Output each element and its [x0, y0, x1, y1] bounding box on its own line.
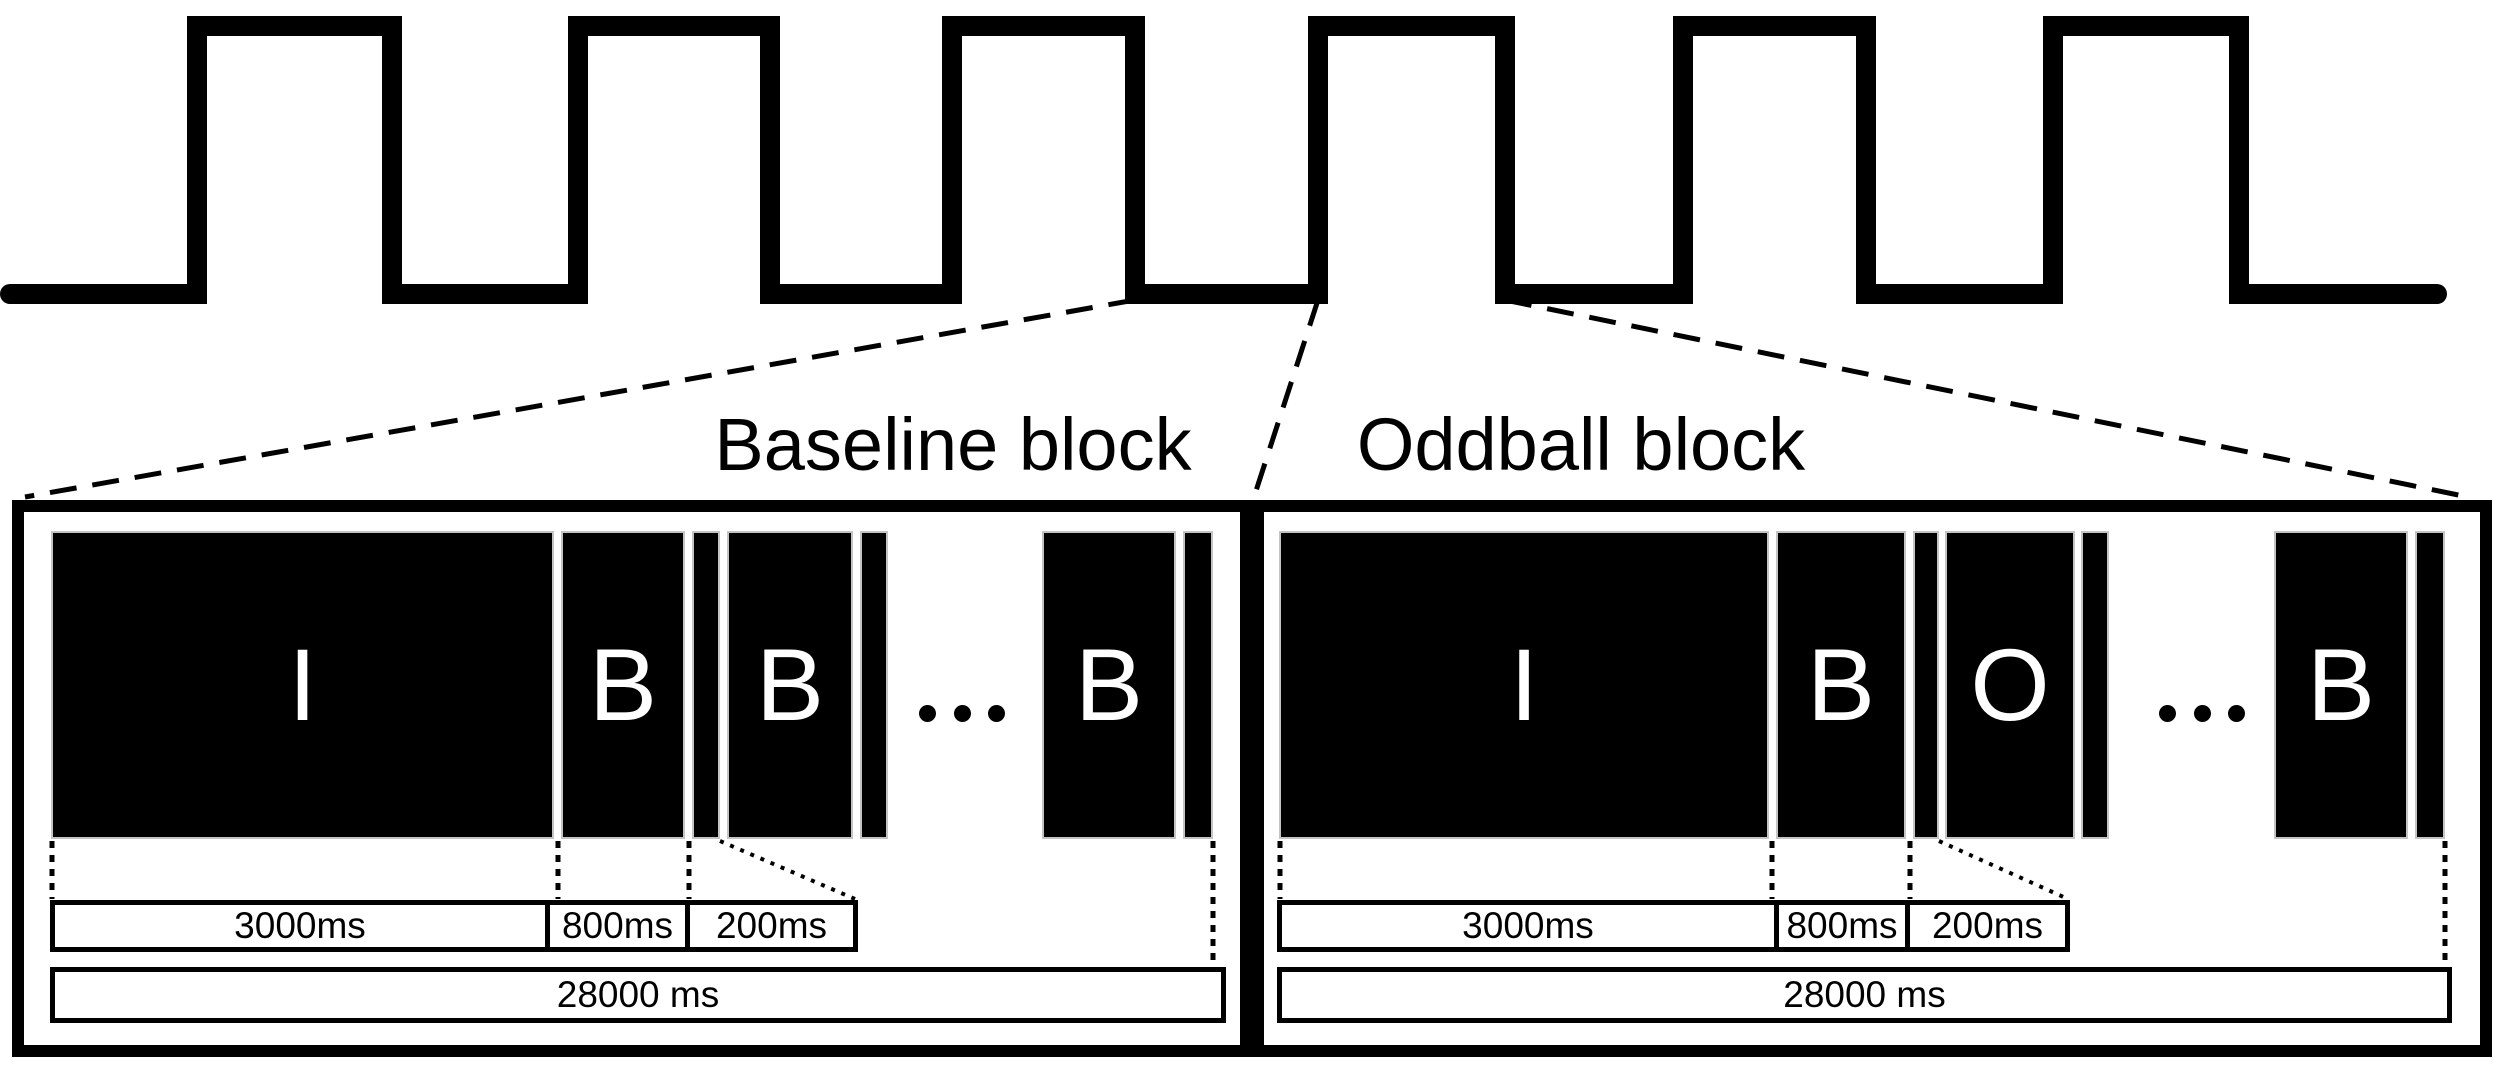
baseline-isi-last — [1183, 531, 1213, 839]
baseline-stimulus-2-letter: B — [756, 634, 824, 736]
baseline-stimulus-last: B — [1042, 531, 1176, 839]
ellipsis-dot — [2228, 705, 2245, 722]
duration-label: 200ms — [1932, 905, 2043, 947]
ellipsis-dot — [2159, 705, 2176, 722]
baseline-stimulus-2: B — [727, 531, 853, 839]
baseline-block-title: Baseline block — [700, 406, 1206, 484]
baseline-stimulus-1-letter: B — [589, 634, 657, 736]
duration-label: 800ms — [1786, 905, 1897, 947]
baseline-total-duration-bar: 28000 ms — [50, 967, 1226, 1023]
oddball-stimulus-1-letter: B — [1807, 634, 1875, 736]
oddball-stimulus-initial: I — [1279, 531, 1769, 839]
duration-label: 800ms — [562, 905, 673, 947]
baseline-duration-cell-3000ms: 3000ms — [50, 900, 550, 952]
oddball-initial-letter: I — [1510, 634, 1538, 736]
oddball-stimulus-1: B — [1776, 531, 1906, 839]
oddball-isi-2 — [2081, 531, 2109, 839]
oddball-duration-cell-200ms: 200ms — [1905, 900, 2070, 952]
oddball-duration-cell-800ms: 800ms — [1774, 900, 1910, 952]
total-duration-label: 28000 ms — [1783, 974, 1946, 1016]
ellipsis-dot — [988, 705, 1005, 722]
ellipsis-dot — [954, 705, 971, 722]
duration-label: 200ms — [716, 905, 827, 947]
duration-label: 3000ms — [1462, 905, 1594, 947]
baseline-stimulus-last-letter: B — [1075, 634, 1143, 736]
baseline-initial-letter: I — [288, 634, 316, 736]
baseline-duration-cell-800ms: 800ms — [545, 900, 690, 952]
total-duration-label: 28000 ms — [557, 974, 720, 1016]
baseline-stimulus-initial: I — [51, 531, 554, 839]
ellipsis-icon — [919, 704, 1005, 722]
oddball-stimulus-last: B — [2274, 531, 2408, 839]
oddball-isi-1 — [1913, 531, 1939, 839]
ellipsis-icon — [2159, 704, 2245, 722]
ellipsis-dot — [919, 705, 936, 722]
baseline-isi-2 — [860, 531, 888, 839]
baseline-stimulus-1: B — [561, 531, 685, 839]
zoom-line-to-junction — [1254, 300, 1318, 497]
baseline-duration-cell-200ms: 200ms — [685, 900, 858, 952]
oddball-total-duration-bar: 28000 ms — [1277, 967, 2452, 1023]
figure-canvas: Baseline block Oddball block I B B B 300… — [0, 0, 2500, 1070]
oddball-duration-cell-3000ms: 3000ms — [1277, 900, 1779, 952]
oddball-stimulus-last-letter: B — [2307, 634, 2375, 736]
square-wave — [10, 26, 2437, 294]
duration-label: 3000ms — [234, 905, 366, 947]
oddball-stimulus-oddball: O — [1945, 531, 2075, 839]
oddball-isi-last — [2415, 531, 2445, 839]
oddball-block-title: Oddball block — [1328, 406, 1834, 484]
ellipsis-dot — [2194, 705, 2211, 722]
oddball-stimulus-oddball-letter: O — [1970, 634, 2049, 736]
baseline-isi-1 — [692, 531, 720, 839]
